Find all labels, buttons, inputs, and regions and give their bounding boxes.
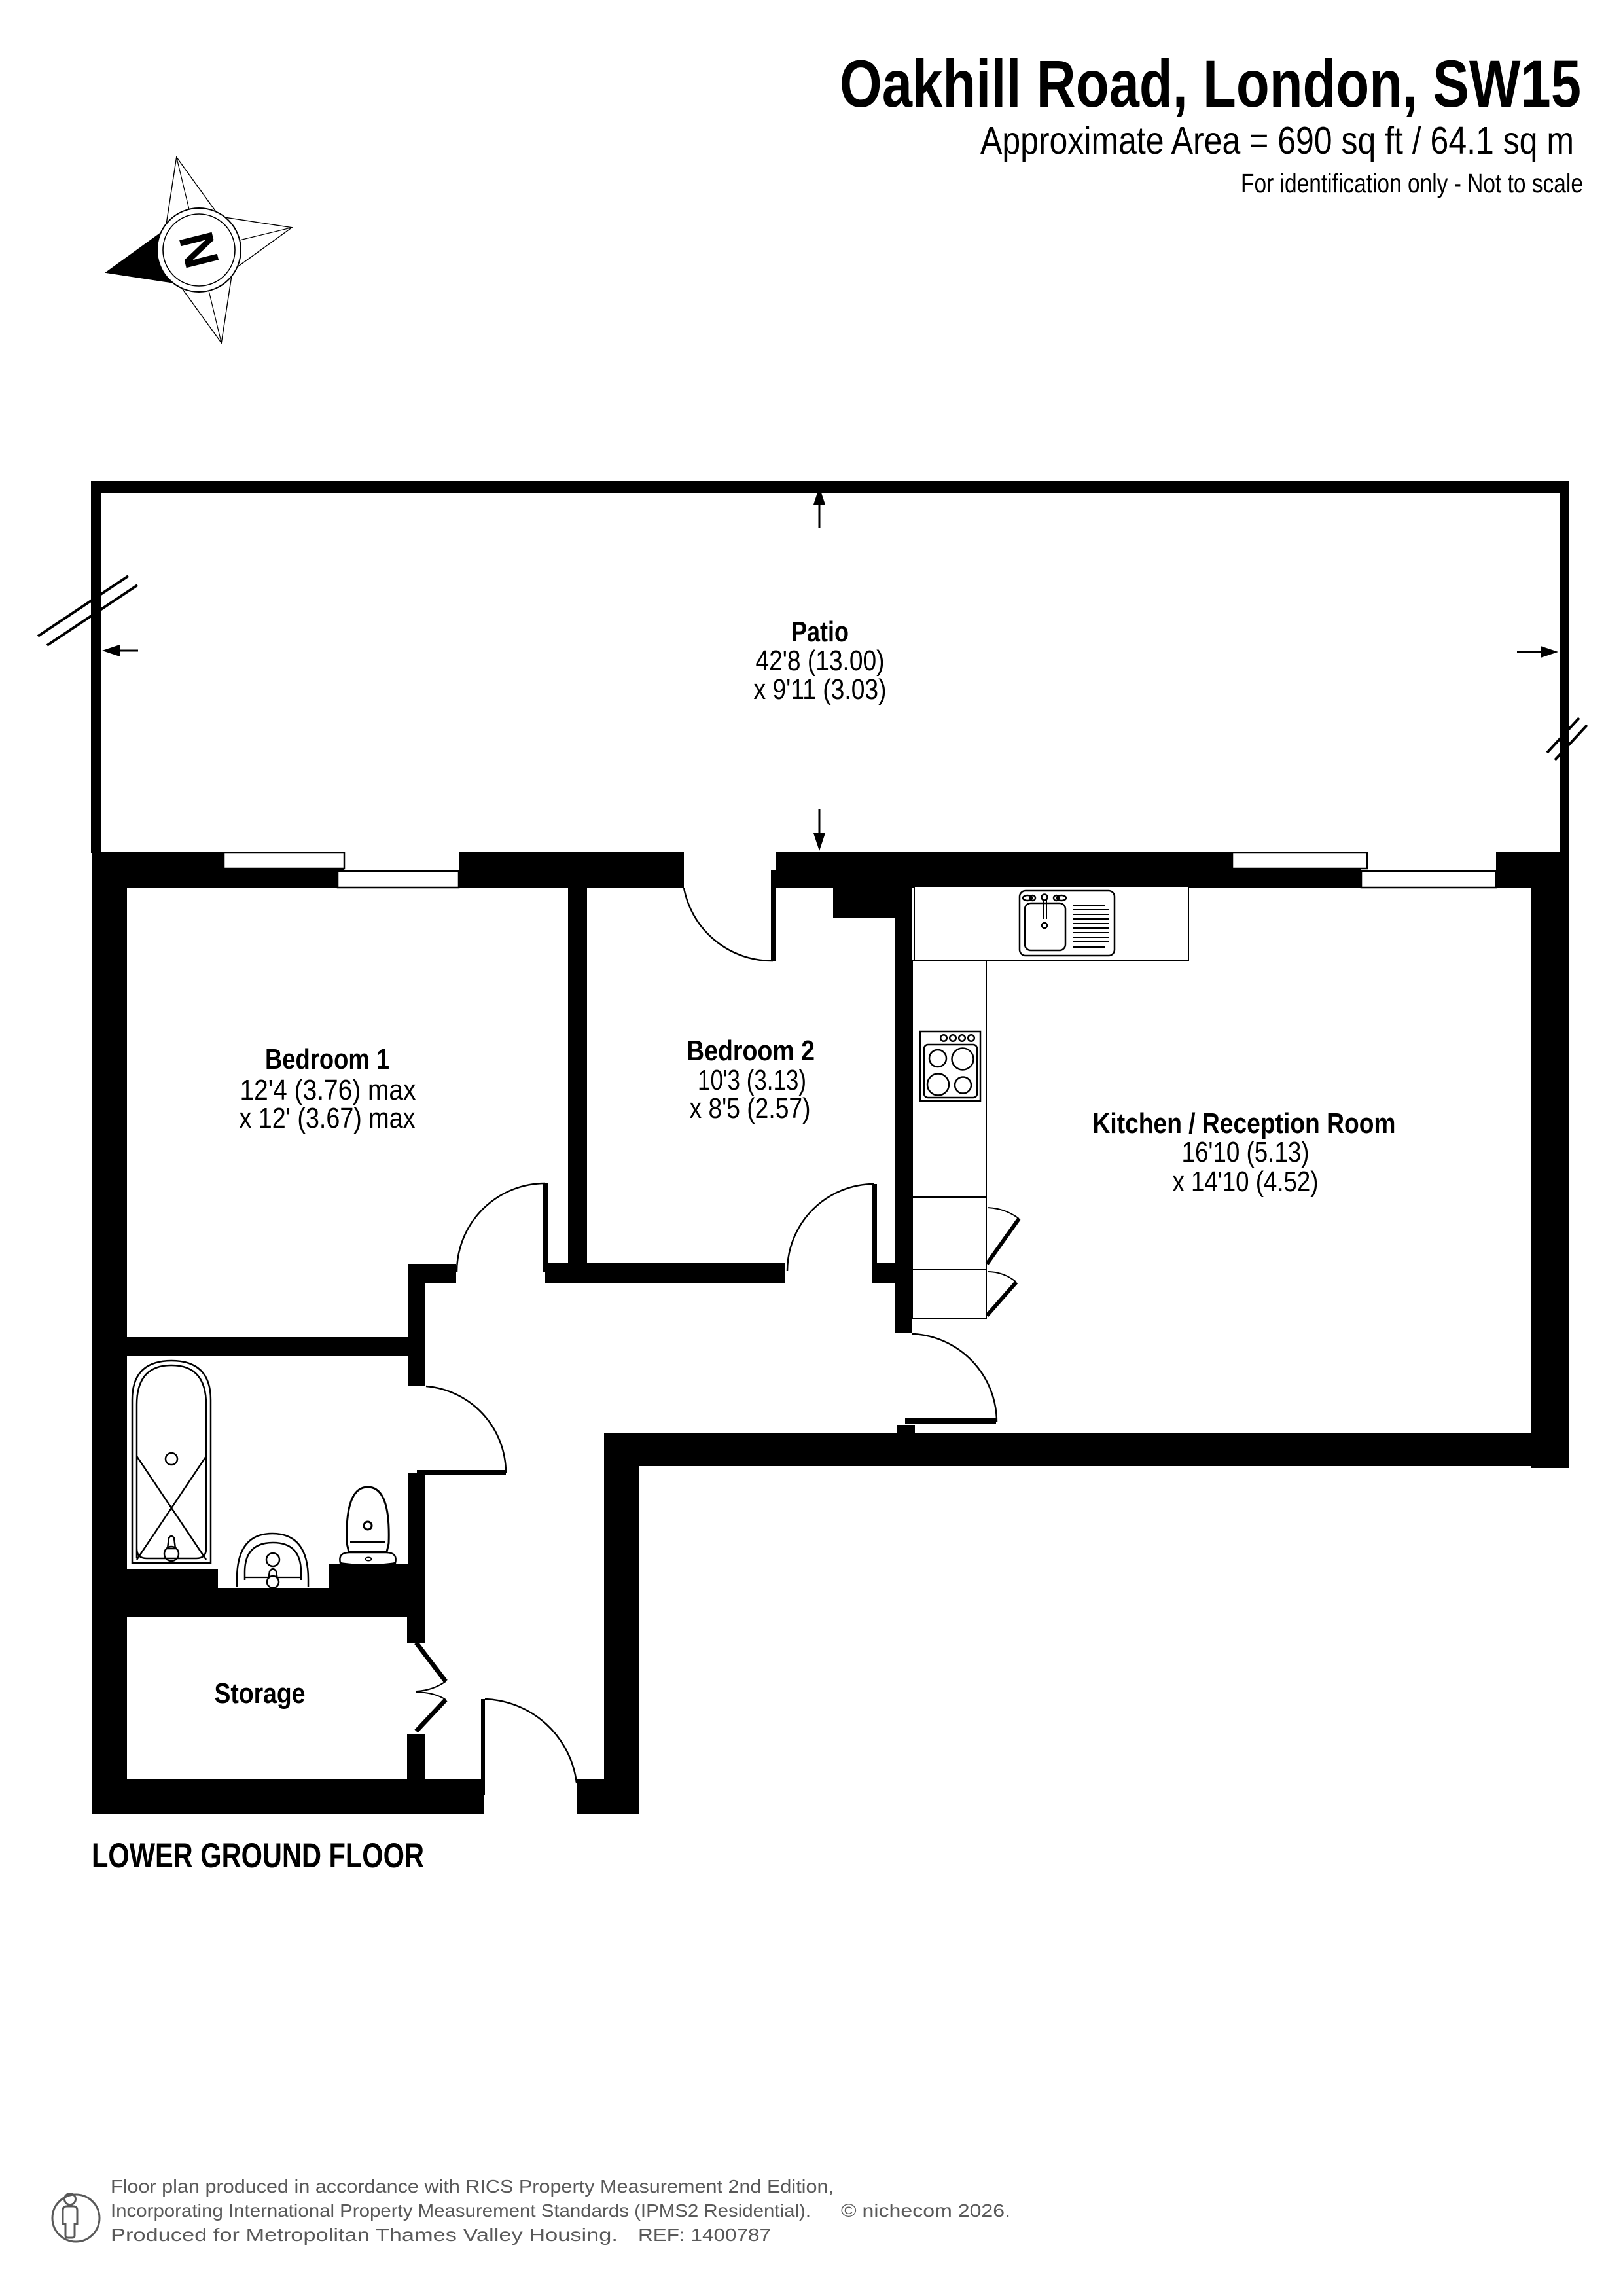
svg-text:x 12' (3.67) max: x 12' (3.67) max (240, 1102, 416, 1134)
svg-text:x 9'11 (3.03): x 9'11 (3.03) (754, 673, 887, 706)
svg-text:12'4 (3.76) max: 12'4 (3.76) max (240, 1074, 416, 1106)
svg-text:Floor plan produced in accorda: Floor plan produced in accordance with R… (111, 2176, 834, 2197)
svg-text:Bedroom 2: Bedroom 2 (687, 1035, 815, 1067)
svg-text:Kitchen / Reception Room: Kitchen / Reception Room (1093, 1107, 1396, 1139)
svg-text:For identification only - Not: For identification only - Not to scale (1241, 168, 1583, 198)
svg-text:REF: 1400787: REF: 1400787 (638, 2225, 771, 2245)
svg-text:Incorporating International Pr: Incorporating International Property Mea… (111, 2200, 811, 2221)
svg-text:© nichecom 2026.: © nichecom 2026. (841, 2200, 1010, 2221)
svg-text:x 8'5 (2.57): x 8'5 (2.57) (690, 1092, 811, 1124)
svg-text:x 14'10 (4.52): x 14'10 (4.52) (1173, 1166, 1319, 1198)
svg-text:Produced for Metropolitan Tham: Produced for Metropolitan Thames Valley … (111, 2225, 618, 2245)
svg-text:Bedroom 1: Bedroom 1 (265, 1043, 389, 1075)
svg-text:Storage: Storage (215, 1677, 306, 1710)
svg-text:Patio: Patio (791, 616, 849, 648)
svg-text:16'10 (5.13): 16'10 (5.13) (1182, 1136, 1310, 1168)
svg-text:42'8 (13.00): 42'8 (13.00) (756, 645, 885, 677)
svg-text:Oakhill Road, London, SW15: Oakhill Road, London, SW15 (840, 46, 1581, 121)
svg-text:Approximate Area = 690 sq ft /: Approximate Area = 690 sq ft / 64.1 sq m (980, 119, 1574, 162)
svg-text:10'3 (3.13): 10'3 (3.13) (698, 1064, 806, 1096)
svg-text:LOWER GROUND FLOOR: LOWER GROUND FLOOR (92, 1837, 424, 1875)
